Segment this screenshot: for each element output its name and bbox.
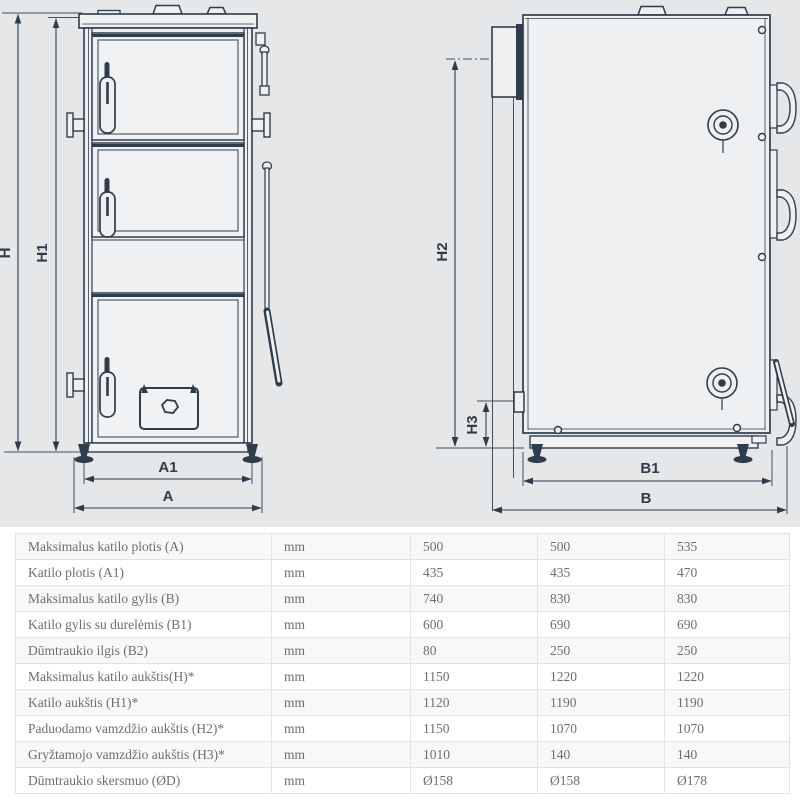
spec-label: Katilo gylis su durelėmis (B1): [16, 612, 272, 638]
dim-label-h1: H1: [34, 243, 51, 262]
spec-label: Dūmtraukio ilgis (B2): [16, 638, 272, 664]
base-front: [88, 443, 248, 452]
spec-value: 500: [538, 534, 665, 560]
spec-label: Gryžtamojo vamzdžio aukštis (H3)*: [16, 742, 272, 768]
boiler-lid: [79, 14, 257, 28]
spec-label: Katilo aukštis (H1)*: [16, 690, 272, 716]
spec-label: Dūmtraukio skersmuo (ØD): [16, 768, 272, 794]
hinge-plate: [770, 85, 777, 128]
table-row: Maksimalus katilo gylis (B) mm 740 830 8…: [16, 586, 790, 612]
screw-icon: [759, 27, 766, 34]
return-pipe-stub: [514, 392, 524, 412]
spec-value: 435: [538, 560, 665, 586]
table-row: Dūmtraukio skersmuo (ØD) mm Ø158 Ø158 Ø1…: [16, 768, 790, 794]
table-row: Maksimalus katilo plotis (A) mm 500 500 …: [16, 534, 790, 560]
spec-value: 1010: [411, 742, 538, 768]
spec-value: 250: [665, 638, 790, 664]
table-row: Katilo aukštis (H1)* mm 1120 1190 1190: [16, 690, 790, 716]
spec-label: Maksimalus katilo gylis (B): [16, 586, 272, 612]
table-row: Paduodamo vamzdžio aukštis (H2)* mm 1150…: [16, 716, 790, 742]
spec-value: 80: [411, 638, 538, 664]
spec-unit: mm: [272, 612, 411, 638]
spec-value: 435: [411, 560, 538, 586]
spec-value: 500: [411, 534, 538, 560]
spec-unit: mm: [272, 768, 411, 794]
spec-unit: mm: [272, 742, 411, 768]
spec-value: 1150: [411, 716, 538, 742]
dim-label-h: H: [0, 248, 14, 259]
spec-label: Maksimalus katilo plotis (A): [16, 534, 272, 560]
spec-value: 140: [665, 742, 790, 768]
spec-value: 535: [665, 534, 790, 560]
spec-value: 690: [538, 612, 665, 638]
spec-unit: mm: [272, 716, 411, 742]
spec-value: Ø158: [411, 768, 538, 794]
screw-icon: [555, 427, 562, 434]
top-cap-4: [725, 8, 748, 16]
spec-unit: mm: [272, 638, 411, 664]
spec-value: 600: [411, 612, 538, 638]
boiler-body-side: [523, 15, 770, 433]
boiler-technical-drawing: H H1: [0, 0, 800, 527]
spec-value: 470: [665, 560, 790, 586]
ash-hatch: [140, 384, 198, 429]
spec-label: Maksimalus katilo aukštis(H)*: [16, 664, 272, 690]
spec-unit: mm: [272, 534, 411, 560]
table-row: Gryžtamojo vamzdžio aukštis (H3)* mm 101…: [16, 742, 790, 768]
spec-unit: mm: [272, 586, 411, 612]
base-side: [530, 436, 758, 448]
spec-table: Maksimalus katilo plotis (A) mm 500 500 …: [15, 533, 790, 794]
table-row: Dūmtraukio ilgis (B2) mm 80 250 250: [16, 638, 790, 664]
spec-value: 830: [665, 586, 790, 612]
spec-table-container: Maksimalus katilo plotis (A) mm 500 500 …: [15, 533, 789, 794]
top-cap-1: [153, 6, 182, 15]
dim-label-b: B: [641, 490, 652, 507]
table-row: Katilo plotis (A1) mm 435 435 470: [16, 560, 790, 586]
spec-value: 690: [665, 612, 790, 638]
screw-icon: [734, 425, 741, 432]
table-row: Maksimalus katilo aukštis(H)* mm 1150 12…: [16, 664, 790, 690]
spec-unit: mm: [272, 560, 411, 586]
spec-value: 1190: [665, 690, 790, 716]
spec-value: 740: [411, 586, 538, 612]
spec-value: 140: [538, 742, 665, 768]
spec-value: 1190: [538, 690, 665, 716]
spec-label: Paduodamo vamzdžio aukštis (H2)*: [16, 716, 272, 742]
spec-value: Ø178: [665, 768, 790, 794]
dim-label-h3: H3: [464, 415, 481, 434]
top-cap-2: [207, 8, 226, 15]
spec-value: 250: [538, 638, 665, 664]
spec-label: Katilo plotis (A1): [16, 560, 272, 586]
spec-value: 1120: [411, 690, 538, 716]
screw-icon: [759, 254, 766, 261]
spec-value: 1150: [411, 664, 538, 690]
dim-label-h2: H2: [434, 242, 451, 261]
table-row: Katilo gylis su durelėmis (B1) mm 600 69…: [16, 612, 790, 638]
base-step: [752, 436, 766, 443]
spec-value: 1220: [538, 664, 665, 690]
dim-label-b1: B1: [640, 460, 659, 477]
spec-value: 1070: [538, 716, 665, 742]
spec-value: 1220: [665, 664, 790, 690]
spec-value: Ø158: [538, 768, 665, 794]
spec-unit: mm: [272, 664, 411, 690]
spec-value: 1070: [665, 716, 790, 742]
spec-value: 830: [538, 586, 665, 612]
spec-unit: mm: [272, 690, 411, 716]
dim-label-a: A: [163, 488, 174, 505]
hinge-plate: [770, 150, 777, 238]
dim-label-a1: A1: [158, 459, 177, 476]
screw-icon: [759, 134, 766, 141]
hex-bolt-icon: [162, 400, 178, 413]
flue-outlet: [492, 24, 524, 100]
top-cap-3: [638, 7, 666, 16]
